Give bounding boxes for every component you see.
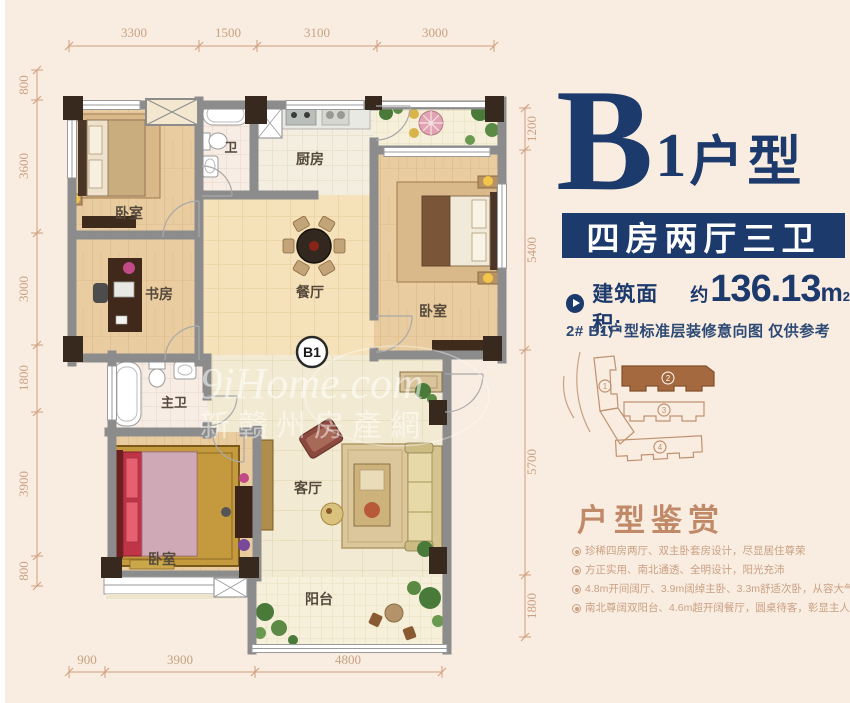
room-label-master-bath: 主卫 [161,395,187,410]
floor-plan: 卧室 书房 卫 厨房 卧室 餐厅 主卫 卧室 客厅 阳台 9iHome.com … [2,0,550,703]
room-label-balcony: 阳台 [305,591,333,607]
dim-right-4: 1800 [524,593,539,619]
dim-left-1: 800 [16,75,31,95]
bullet-icon [572,547,581,556]
bed-bottom-left [114,446,253,569]
dim-right-1: 1200 [524,116,539,142]
room-label-kitchen: 厨房 [296,151,324,167]
dim-bottom-1: 900 [77,652,97,667]
site-building-1-num: 1 [603,382,608,391]
bullet-icon [572,604,581,613]
dim-top-2: 1500 [215,25,241,40]
area-approx: 约 [690,281,708,307]
site-building-4-num: 4 [658,443,663,452]
room-label-bath: 卫 [224,140,237,155]
room-label-bedroom-right: 卧室 [419,303,447,319]
room-label-dining: 餐厅 [295,284,324,300]
dim-bottom-3: 4800 [335,652,361,667]
area-unit-sup: 2 [843,289,850,304]
room-label-bedroom-bl: 卧室 [148,551,176,567]
appreciation-item: 方正实用、南北通透、全明设计，阳光充沛 [572,565,848,576]
appreciation-item: 南北尊阔双阳台、4.6m超开阔餐厅，圆桌待客，彰显主人胸襟气度 [572,603,848,614]
dim-left-2: 3600 [16,153,31,179]
unit-badge-label: B1 [303,344,321,360]
dim-top-4: 3000 [422,25,448,40]
bullet-text: 南北尊阔双阳台、4.6m超开阔餐厅，圆桌待客，彰显主人胸襟气度 [585,603,850,614]
bullet-icon [572,566,581,575]
dim-left-3: 3000 [16,276,31,302]
dim-left-4: 1800 [16,365,31,391]
appreciation-list: 珍稀四房两厅、双主卧套房设计，尽显居住尊荣 方正实用、南北通透、全明设计，阳光充… [572,546,848,622]
unit-badge: B1 [297,337,327,367]
bullet-text: 方正实用、南北通透、全明设计，阳光充沛 [585,565,785,576]
layout-summary-bar: 四房两厅三卫 [562,213,845,258]
bullet-icon [572,585,581,594]
bullet-text: 珍稀四房两厅、双主卧套房设计，尽显居住尊荣 [585,546,806,557]
dim-right-3: 5700 [524,449,539,475]
area-unit: m [821,279,843,308]
site-building-3-num: 3 [662,406,667,415]
play-icon [566,294,584,313]
unit-title-letter: B [556,76,653,204]
appreciation-heading: 户型鉴赏 [577,495,725,540]
unit-title-number: 1 [655,125,686,187]
disclaimer-note: 2# B1户型标准层装修意向图 仅供参考 [566,320,830,341]
dim-top-1: 3300 [121,25,147,40]
dim-left-6: 800 [16,561,31,581]
unit-title-type: 户型 [689,135,805,189]
bullet-text: 4.8m开间阔厅、3.9m阔绰主卧、3.3m舒适次卧，从容大气 [585,584,850,595]
unit-title: B 1 户型 [556,76,805,204]
site-plan: 1 2 3 4 [556,348,736,486]
dim-bottom-2: 3900 [167,652,193,667]
site-building-2-num: 2 [666,374,671,383]
room-label-living: 客厅 [293,480,322,496]
room-label-bedroom-tl: 卧室 [115,205,143,221]
appreciation-item: 4.8m开间阔厅、3.9m阔绰主卧、3.3m舒适次卧，从容大气 [572,584,848,595]
dim-right-2: 5400 [524,237,539,263]
watermark-line2: 新赣州房產網 [200,410,428,443]
area-value: 136.13 [710,268,820,311]
site-building-2: 2 [622,366,714,391]
dim-top-3: 3100 [304,25,330,40]
appreciation-item: 珍稀四房两厅、双主卧套房设计，尽显居住尊荣 [572,546,848,557]
dim-left-5: 3900 [16,471,31,497]
room-label-study: 书房 [145,286,173,302]
